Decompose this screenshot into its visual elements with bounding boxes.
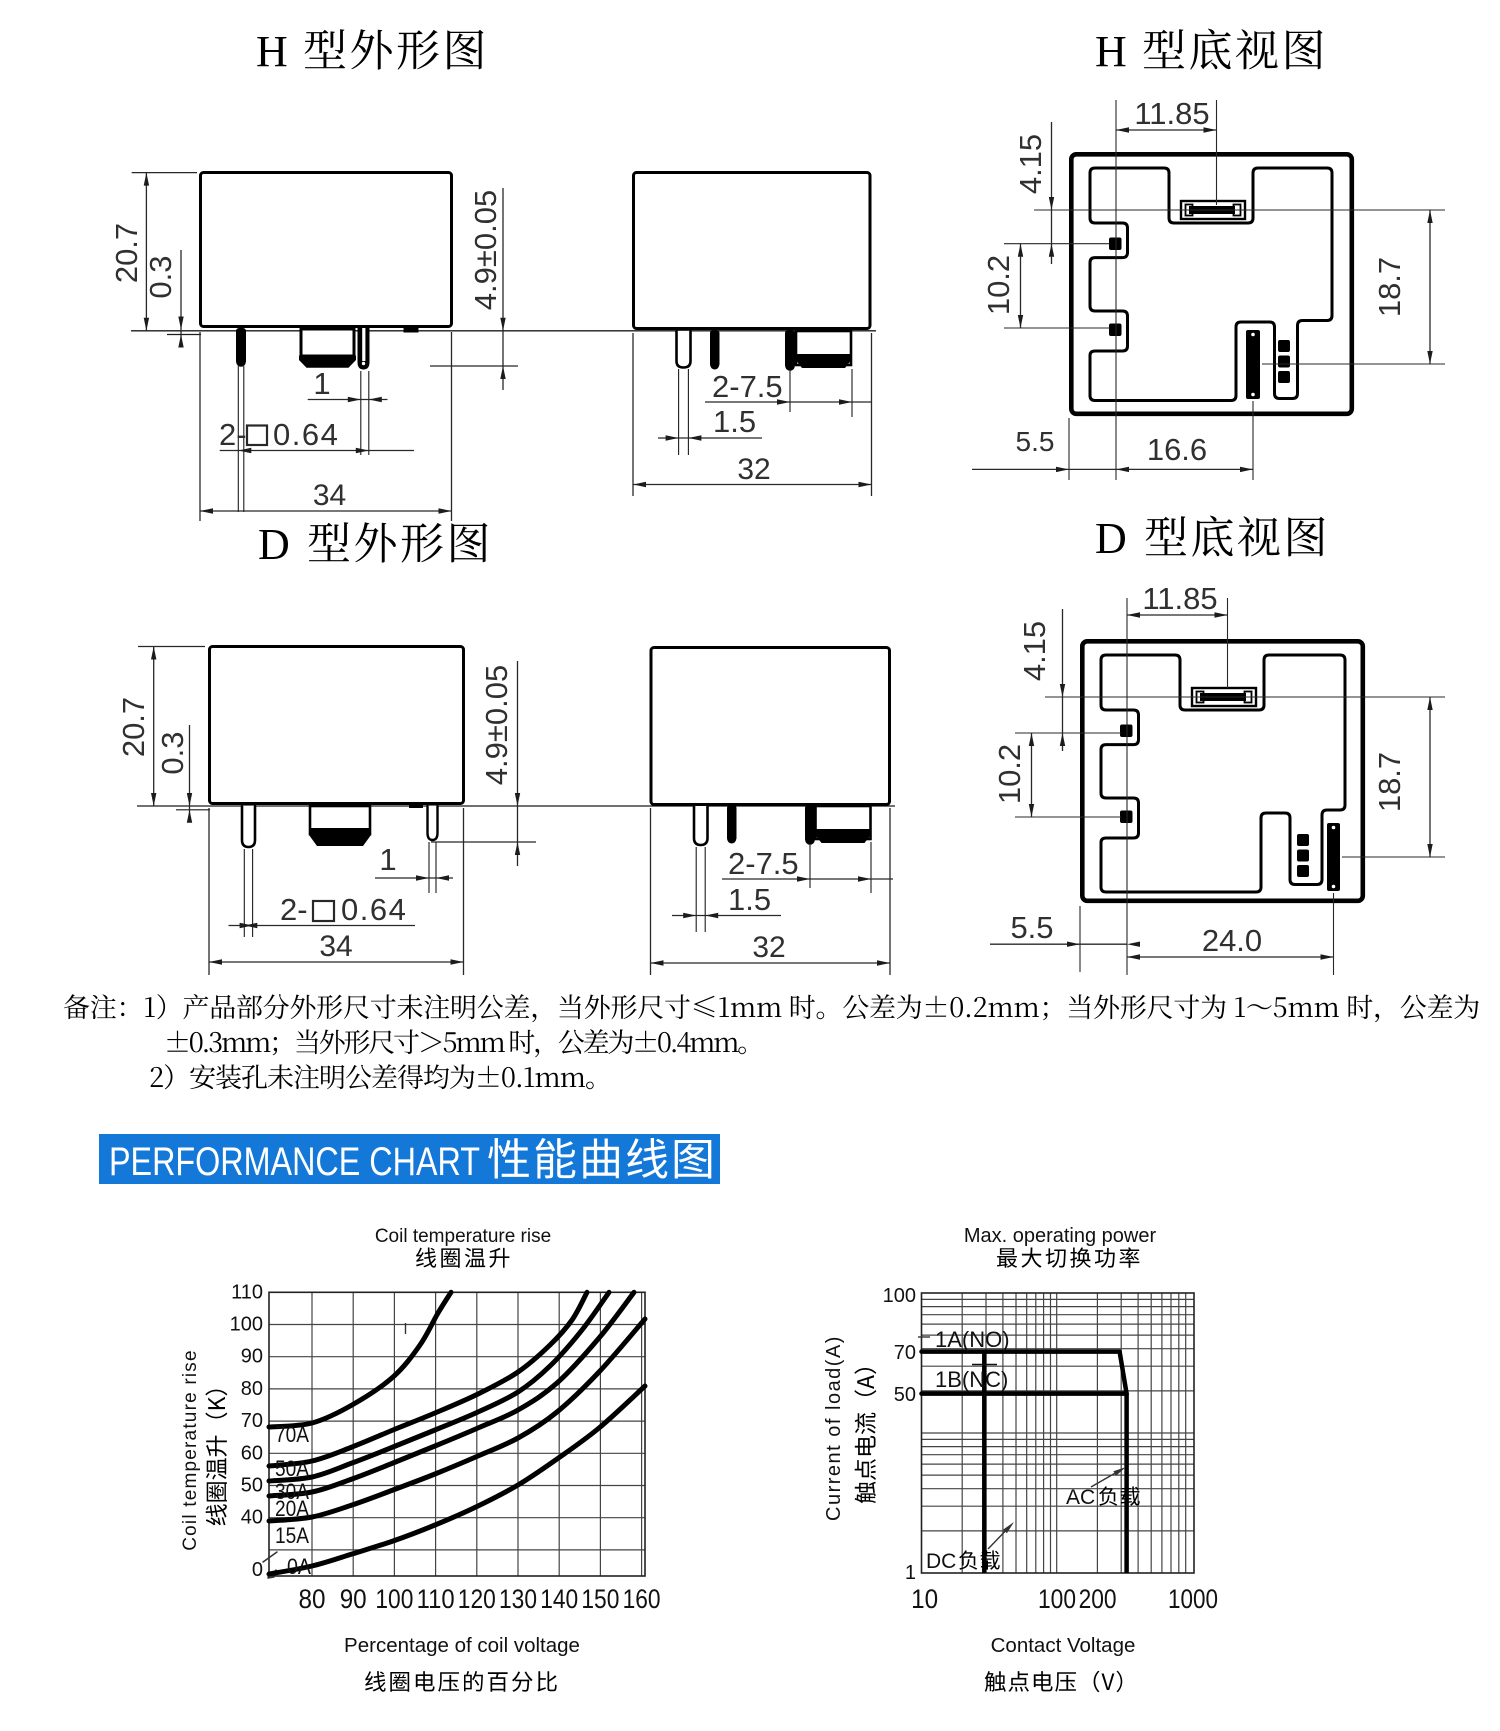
svg-text:70A: 70A <box>275 1422 309 1447</box>
svg-text:1: 1 <box>379 842 396 877</box>
svg-text:0A: 0A <box>287 1554 311 1579</box>
svg-text:1B(NC): 1B(NC) <box>935 1367 1008 1392</box>
svg-text:4.15: 4.15 <box>1013 134 1048 194</box>
svg-text:70: 70 <box>894 1342 916 1364</box>
svg-text:1.5: 1.5 <box>713 404 756 439</box>
svg-text:H: H <box>256 27 288 76</box>
svg-text:Percentage of coil voltage: Percentage of coil voltage <box>344 1634 580 1657</box>
svg-text:50: 50 <box>241 1475 263 1497</box>
svg-text:0: 0 <box>252 1559 263 1581</box>
svg-text:110: 110 <box>417 1584 455 1614</box>
svg-text:130: 130 <box>499 1584 537 1614</box>
svg-text:90: 90 <box>241 1346 263 1368</box>
svg-text:100: 100 <box>375 1584 413 1614</box>
svg-text:Coil temperature rise: Coil temperature rise <box>375 1226 551 1247</box>
svg-text:2-7.5: 2-7.5 <box>712 369 783 404</box>
svg-text:DC: DC <box>926 1550 956 1573</box>
svg-text:D: D <box>258 520 290 569</box>
svg-text:PERFORMANCE CHART: PERFORMANCE CHART <box>109 1140 480 1184</box>
svg-text:16.6: 16.6 <box>1147 432 1207 467</box>
svg-text:32: 32 <box>752 931 785 964</box>
svg-text:18.7: 18.7 <box>1372 257 1407 317</box>
svg-text:32: 32 <box>737 453 770 486</box>
svg-text:150: 150 <box>581 1584 619 1614</box>
svg-text:4.9±0.05: 4.9±0.05 <box>468 190 503 310</box>
svg-text:Contact Voltage: Contact Voltage <box>991 1634 1136 1657</box>
svg-text:11.85: 11.85 <box>1142 581 1217 616</box>
svg-text:4.15: 4.15 <box>1017 621 1052 681</box>
svg-text:1.5: 1.5 <box>728 882 771 917</box>
svg-text:0.3: 0.3 <box>155 731 190 774</box>
svg-text:40: 40 <box>241 1507 263 1529</box>
svg-text:50: 50 <box>894 1384 916 1406</box>
svg-text:5.5: 5.5 <box>1010 910 1053 945</box>
svg-text:34: 34 <box>313 479 346 512</box>
svg-text:Coil temperature rise: Coil temperature rise <box>180 1349 201 1551</box>
svg-text:1A(NO): 1A(NO) <box>935 1327 1010 1352</box>
svg-text:Current of load(A): Current of load(A) <box>823 1335 845 1521</box>
svg-text:1000: 1000 <box>1168 1584 1218 1614</box>
svg-text:2-: 2- <box>280 892 308 927</box>
svg-text:100: 100 <box>883 1285 916 1307</box>
svg-text:18.7: 18.7 <box>1372 752 1407 812</box>
svg-text:24.0: 24.0 <box>1202 923 1262 958</box>
svg-text:H: H <box>1095 27 1127 76</box>
svg-text:1: 1 <box>905 1562 916 1584</box>
svg-text:15A: 15A <box>275 1523 309 1548</box>
svg-text:34: 34 <box>319 930 352 963</box>
svg-text:2-7.5: 2-7.5 <box>728 846 799 881</box>
svg-text:160: 160 <box>623 1584 661 1614</box>
svg-text:80: 80 <box>241 1378 263 1400</box>
svg-text:200: 200 <box>1079 1584 1117 1614</box>
svg-text:100: 100 <box>1038 1584 1076 1614</box>
svg-text:0.3: 0.3 <box>143 255 178 298</box>
svg-text:20.7: 20.7 <box>109 223 144 283</box>
svg-text:80: 80 <box>299 1584 326 1614</box>
svg-text:10: 10 <box>911 1584 938 1614</box>
svg-text:50A: 50A <box>275 1456 309 1481</box>
svg-text:4.9±0.05: 4.9±0.05 <box>479 665 514 785</box>
svg-text:20.7: 20.7 <box>116 697 151 757</box>
svg-text:20A: 20A <box>275 1496 309 1521</box>
svg-text:D: D <box>1095 514 1127 563</box>
svg-text:120: 120 <box>458 1584 496 1614</box>
svg-text:70: 70 <box>241 1410 263 1432</box>
svg-text:10.2: 10.2 <box>992 744 1027 804</box>
svg-text:5.5: 5.5 <box>1016 426 1055 457</box>
svg-text:Max. operating power: Max. operating power <box>964 1225 1157 1247</box>
svg-text:10.2: 10.2 <box>981 255 1016 315</box>
svg-text:140: 140 <box>540 1584 578 1614</box>
svg-text:60: 60 <box>241 1442 263 1464</box>
svg-text:0.64: 0.64 <box>273 417 339 452</box>
svg-text:0.64: 0.64 <box>341 892 407 927</box>
svg-text:AC: AC <box>1066 1486 1095 1509</box>
svg-text:1: 1 <box>313 366 330 401</box>
svg-text:11.85: 11.85 <box>1134 96 1209 131</box>
svg-text:2-: 2- <box>219 417 247 452</box>
svg-text:100: 100 <box>230 1314 263 1336</box>
svg-text:110: 110 <box>231 1281 263 1303</box>
svg-text:90: 90 <box>340 1584 367 1614</box>
